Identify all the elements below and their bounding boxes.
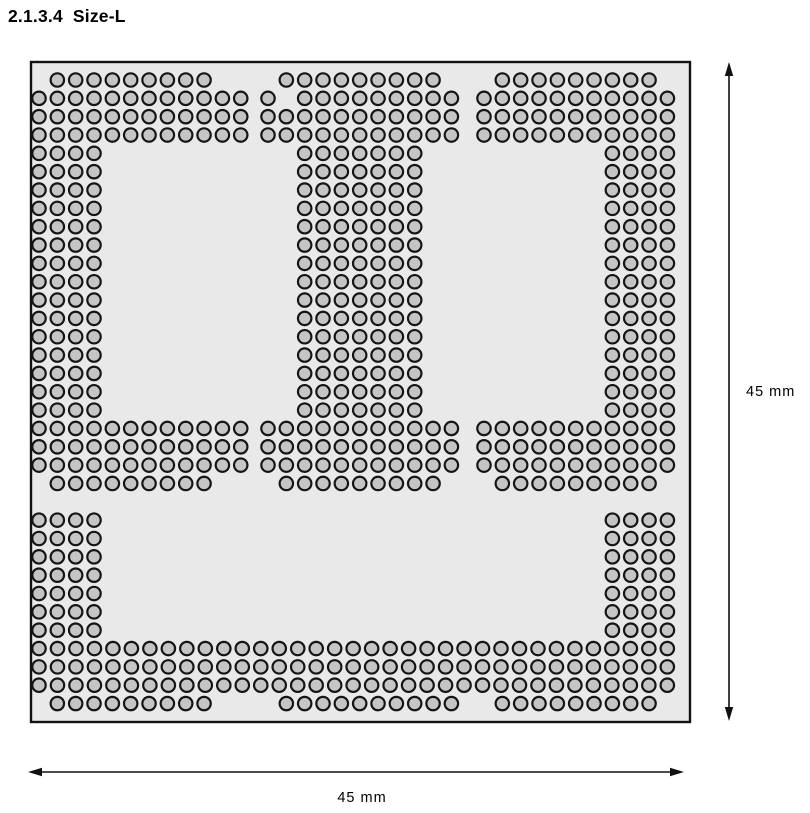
ball-pad — [124, 73, 137, 86]
ball-pad — [642, 275, 655, 288]
ball-pad — [316, 477, 329, 490]
ball-pad — [624, 532, 637, 545]
ball-pad — [179, 110, 192, 123]
ball-pad — [51, 147, 64, 160]
ball-pad — [568, 642, 581, 655]
ball-pad — [161, 477, 174, 490]
ball-pad — [298, 348, 311, 361]
ball-pad — [124, 458, 137, 471]
ball-pad — [606, 330, 619, 343]
ball-pad — [335, 403, 348, 416]
ball-pad — [550, 660, 563, 673]
ball-pad — [390, 367, 403, 380]
ball-pad — [280, 477, 293, 490]
ball-pad — [316, 275, 329, 288]
ball-pad — [390, 458, 403, 471]
ball-pad — [216, 440, 229, 453]
ball-pad — [661, 147, 674, 160]
ball-pad — [606, 348, 619, 361]
ball-pad — [69, 660, 82, 673]
ball-pad — [661, 312, 674, 325]
ball-pad — [642, 440, 655, 453]
ball-pad — [642, 477, 655, 490]
ball-pad — [513, 679, 526, 692]
ball-pad — [32, 348, 45, 361]
ball-pad — [390, 477, 403, 490]
ball-pad — [51, 385, 64, 398]
ball-pad — [87, 257, 100, 270]
ball-pad — [642, 293, 655, 306]
ball-pad — [298, 697, 311, 710]
ball-pad — [587, 660, 600, 673]
ball-pad — [335, 312, 348, 325]
ball-pad — [496, 92, 509, 105]
ball-pad — [298, 385, 311, 398]
ball-pad — [69, 568, 82, 581]
ball-pad — [106, 679, 119, 692]
ball-pad — [371, 238, 384, 251]
ball-pad — [298, 367, 311, 380]
ball-pad — [494, 660, 507, 673]
ball-pad — [408, 312, 421, 325]
ball-pad — [371, 330, 384, 343]
ball-pad — [569, 422, 582, 435]
ball-pad — [477, 128, 490, 141]
ball-pad — [335, 202, 348, 215]
ball-pad — [390, 275, 403, 288]
ball-pad — [197, 440, 210, 453]
ball-pad — [125, 660, 138, 673]
ball-pad — [161, 73, 174, 86]
ball-pad — [197, 110, 210, 123]
ball-pad — [51, 165, 64, 178]
ball-pad — [408, 697, 421, 710]
ball-pad — [476, 660, 489, 673]
ball-pad — [316, 348, 329, 361]
ball-pad — [124, 110, 137, 123]
ball-pad — [661, 679, 674, 692]
ball-pad — [69, 403, 82, 416]
ball-pad — [216, 92, 229, 105]
ball-pad — [408, 385, 421, 398]
ball-pad — [87, 385, 100, 398]
ball-pad — [353, 440, 366, 453]
ball-pad — [162, 660, 175, 673]
ball-pad — [51, 477, 64, 490]
ball-pad — [408, 275, 421, 288]
ball-pad — [335, 147, 348, 160]
ball-pad — [261, 128, 274, 141]
ball-pad — [353, 422, 366, 435]
ball-pad — [551, 477, 564, 490]
ball-pad — [606, 550, 619, 563]
ball-pad — [624, 293, 637, 306]
ball-pad — [390, 128, 403, 141]
ball-pad — [642, 147, 655, 160]
ball-pad — [335, 92, 348, 105]
ball-pad — [532, 92, 545, 105]
ball-pad — [335, 165, 348, 178]
ball-pad — [390, 348, 403, 361]
ball-pad — [606, 147, 619, 160]
ball-pad — [383, 660, 396, 673]
ball-pad — [661, 293, 674, 306]
ball-pad — [624, 513, 637, 526]
ball-pad — [606, 128, 619, 141]
ball-pad — [587, 697, 600, 710]
ball-pad — [371, 165, 384, 178]
ball-pad — [162, 642, 175, 655]
ball-pad — [531, 660, 544, 673]
ball-pad — [408, 165, 421, 178]
ball-pad — [371, 440, 384, 453]
ball-pad — [624, 605, 637, 618]
ball-pad — [420, 660, 433, 673]
ball-pad — [531, 679, 544, 692]
ball-pad — [106, 697, 119, 710]
ball-pad — [298, 183, 311, 196]
ball-pad — [69, 165, 82, 178]
ball-pad — [161, 697, 174, 710]
ball-pad — [371, 275, 384, 288]
ball-pad — [216, 128, 229, 141]
ball-pad — [532, 73, 545, 86]
ball-pad — [179, 92, 192, 105]
ball-pad — [199, 642, 212, 655]
ball-pad — [161, 92, 174, 105]
ball-pad — [69, 642, 82, 655]
ball-pad — [494, 642, 507, 655]
ball-pad — [87, 128, 100, 141]
ball-pad — [642, 202, 655, 215]
ball-pad — [32, 312, 45, 325]
ball-pad — [335, 110, 348, 123]
ball-pad — [106, 458, 119, 471]
ball-pad — [69, 513, 82, 526]
ball-pad — [124, 92, 137, 105]
ball-pad — [234, 440, 247, 453]
arrowhead-right — [670, 768, 684, 776]
ball-pad — [161, 422, 174, 435]
ball-pad — [87, 605, 100, 618]
ball-pad — [371, 220, 384, 233]
ball-pad — [642, 220, 655, 233]
ball-pad — [353, 330, 366, 343]
ball-pad — [624, 367, 637, 380]
ball-pad — [335, 128, 348, 141]
ball-pad — [661, 165, 674, 178]
ball-pad — [642, 679, 655, 692]
ball-pad — [496, 697, 509, 710]
ball-pad — [87, 293, 100, 306]
ball-pad — [624, 128, 637, 141]
ball-pad — [642, 183, 655, 196]
ball-pad — [371, 477, 384, 490]
ball-pad — [408, 73, 421, 86]
ball-pad — [390, 312, 403, 325]
ball-pad — [624, 642, 637, 655]
ball-pad — [316, 165, 329, 178]
ball-pad — [642, 385, 655, 398]
ball-pad — [642, 312, 655, 325]
ball-pad — [624, 348, 637, 361]
ball-pad — [87, 312, 100, 325]
ball-pad — [390, 220, 403, 233]
ball-pad — [161, 110, 174, 123]
ball-pad — [69, 697, 82, 710]
ball-pad — [69, 458, 82, 471]
ball-pad — [642, 624, 655, 637]
ball-pad — [335, 73, 348, 86]
width-dimension-label: 45 mm — [337, 790, 386, 806]
ball-pad — [353, 92, 366, 105]
ball-pad — [605, 642, 618, 655]
ball-pad — [606, 697, 619, 710]
ball-pad — [390, 165, 403, 178]
ball-pad — [365, 660, 378, 673]
ball-pad — [32, 147, 45, 160]
ball-pad — [197, 422, 210, 435]
ball-pad — [87, 422, 100, 435]
ball-pad — [87, 403, 100, 416]
ball-pad — [477, 440, 490, 453]
ball-pad — [624, 330, 637, 343]
ball-pad — [426, 73, 439, 86]
ball-pad — [51, 238, 64, 251]
ball-pad — [69, 220, 82, 233]
ball-pad — [316, 110, 329, 123]
ball-pad — [346, 660, 359, 673]
ball-pad — [328, 679, 341, 692]
ball-pad — [32, 202, 45, 215]
ball-pad — [606, 403, 619, 416]
ball-pad — [371, 458, 384, 471]
ball-pad — [298, 293, 311, 306]
ball-pad — [51, 697, 64, 710]
ball-pad — [550, 642, 563, 655]
ball-pad — [316, 293, 329, 306]
vertical-dimension-arrow — [725, 62, 733, 721]
ball-pad — [445, 422, 458, 435]
ball-pad — [353, 128, 366, 141]
ball-pad — [335, 220, 348, 233]
ball-pad — [353, 165, 366, 178]
ball-pad — [642, 660, 655, 673]
ball-pad — [624, 458, 637, 471]
ball-pad — [87, 513, 100, 526]
ball-pad — [642, 422, 655, 435]
ball-pad — [624, 422, 637, 435]
ball-pad — [624, 660, 637, 673]
ball-pad — [87, 275, 100, 288]
ball-pad — [587, 92, 600, 105]
ball-pad — [87, 220, 100, 233]
ball-pad — [371, 128, 384, 141]
ball-pad — [142, 110, 155, 123]
ball-pad — [532, 110, 545, 123]
ball-pad — [87, 202, 100, 215]
ball-pad — [371, 697, 384, 710]
ball-pad — [371, 147, 384, 160]
ball-pad — [426, 128, 439, 141]
ball-pad — [142, 697, 155, 710]
ball-pad — [51, 92, 64, 105]
ball-pad — [642, 568, 655, 581]
ball-pad — [335, 183, 348, 196]
ball-pad — [87, 440, 100, 453]
ball-pad — [420, 642, 433, 655]
ball-pad — [353, 257, 366, 270]
ball-pad — [69, 679, 82, 692]
ball-pad — [551, 110, 564, 123]
ball-pad — [371, 110, 384, 123]
ball-pad — [353, 183, 366, 196]
ball-pad — [408, 477, 421, 490]
ball-pad — [87, 348, 100, 361]
ball-pad — [316, 330, 329, 343]
ball-pad — [642, 128, 655, 141]
ball-pad — [551, 73, 564, 86]
ball-pad — [32, 238, 45, 251]
ball-pad — [606, 275, 619, 288]
ball-pad — [310, 642, 323, 655]
ball-pad — [32, 403, 45, 416]
ball-pad — [51, 587, 64, 600]
ball-pad — [328, 660, 341, 673]
ball-pad — [532, 422, 545, 435]
ball-pad — [514, 128, 527, 141]
ball-pad — [642, 367, 655, 380]
ball-pad — [161, 458, 174, 471]
ball-pad — [298, 422, 311, 435]
ball-pad — [496, 128, 509, 141]
ball-pad — [420, 679, 433, 692]
ball-pad — [390, 202, 403, 215]
ball-pad — [624, 165, 637, 178]
ball-pad — [179, 458, 192, 471]
ball-pad — [426, 477, 439, 490]
ball-pad — [661, 128, 674, 141]
ball-pad — [335, 293, 348, 306]
ball-pad — [496, 422, 509, 435]
ball-pad — [261, 422, 274, 435]
ball-pad — [87, 165, 100, 178]
ball-pad — [316, 697, 329, 710]
ball-pad — [426, 422, 439, 435]
ball-pad — [199, 660, 212, 673]
ball-pad — [179, 422, 192, 435]
ball-pad — [69, 367, 82, 380]
ball-pad — [408, 238, 421, 251]
ball-pad — [587, 458, 600, 471]
ball-pad — [353, 458, 366, 471]
ball-pad — [197, 92, 210, 105]
ball-pad — [69, 238, 82, 251]
ball-pad — [661, 550, 674, 563]
ball-pad — [51, 110, 64, 123]
ball-pad — [316, 73, 329, 86]
ball-pad — [51, 348, 64, 361]
ball-pad — [457, 660, 470, 673]
ball-pad — [371, 293, 384, 306]
ball-pad — [51, 568, 64, 581]
ball-pad — [291, 679, 304, 692]
ball-pad — [532, 477, 545, 490]
ball-pad — [624, 147, 637, 160]
ball-pad — [514, 697, 527, 710]
ball-pad — [197, 697, 210, 710]
ball-pad — [124, 697, 137, 710]
ball-pad — [316, 202, 329, 215]
ball-pad — [51, 624, 64, 637]
ball-pad — [445, 128, 458, 141]
ball-pad — [661, 385, 674, 398]
ball-pad — [408, 293, 421, 306]
ball-pad — [335, 458, 348, 471]
ball-pad — [624, 220, 637, 233]
ball-pad — [69, 422, 82, 435]
ball-pad — [316, 312, 329, 325]
ball-pad — [87, 477, 100, 490]
ball-pad — [310, 660, 323, 673]
ball-pad — [624, 697, 637, 710]
ball-pad — [371, 312, 384, 325]
ball-pad — [661, 587, 674, 600]
ball-pad — [624, 257, 637, 270]
ball-pad — [371, 403, 384, 416]
ball-pad — [445, 697, 458, 710]
ball-pad — [280, 110, 293, 123]
ball-pad — [661, 220, 674, 233]
ball-pad — [69, 202, 82, 215]
ball-pad — [316, 367, 329, 380]
ball-pad — [179, 128, 192, 141]
ball-pad — [551, 92, 564, 105]
ball-pad — [408, 128, 421, 141]
ball-pad — [408, 348, 421, 361]
ball-pad — [642, 238, 655, 251]
ball-pad — [426, 440, 439, 453]
ball-pad — [624, 92, 637, 105]
ball-pad — [280, 458, 293, 471]
ball-pad — [383, 642, 396, 655]
ball-pad — [51, 422, 64, 435]
ball-pad — [477, 458, 490, 471]
ball-pad — [51, 330, 64, 343]
ball-pad — [661, 568, 674, 581]
ball-pad — [642, 605, 655, 618]
ball-pad — [477, 110, 490, 123]
ball-pad — [298, 257, 311, 270]
ball-pad — [371, 367, 384, 380]
ball-pad — [569, 697, 582, 710]
ball-pad — [125, 679, 138, 692]
ball-pad — [88, 660, 101, 673]
ball-pad — [606, 532, 619, 545]
ball-pad — [353, 238, 366, 251]
ball-pad — [69, 183, 82, 196]
ball-pad — [87, 147, 100, 160]
ball-pad — [408, 92, 421, 105]
ball-pad — [280, 440, 293, 453]
ball-pad — [371, 422, 384, 435]
ball-pad — [531, 642, 544, 655]
ball-pad — [298, 312, 311, 325]
ball-pad — [161, 440, 174, 453]
ball-pad — [551, 440, 564, 453]
ball-pad — [606, 110, 619, 123]
ball-pad — [661, 422, 674, 435]
